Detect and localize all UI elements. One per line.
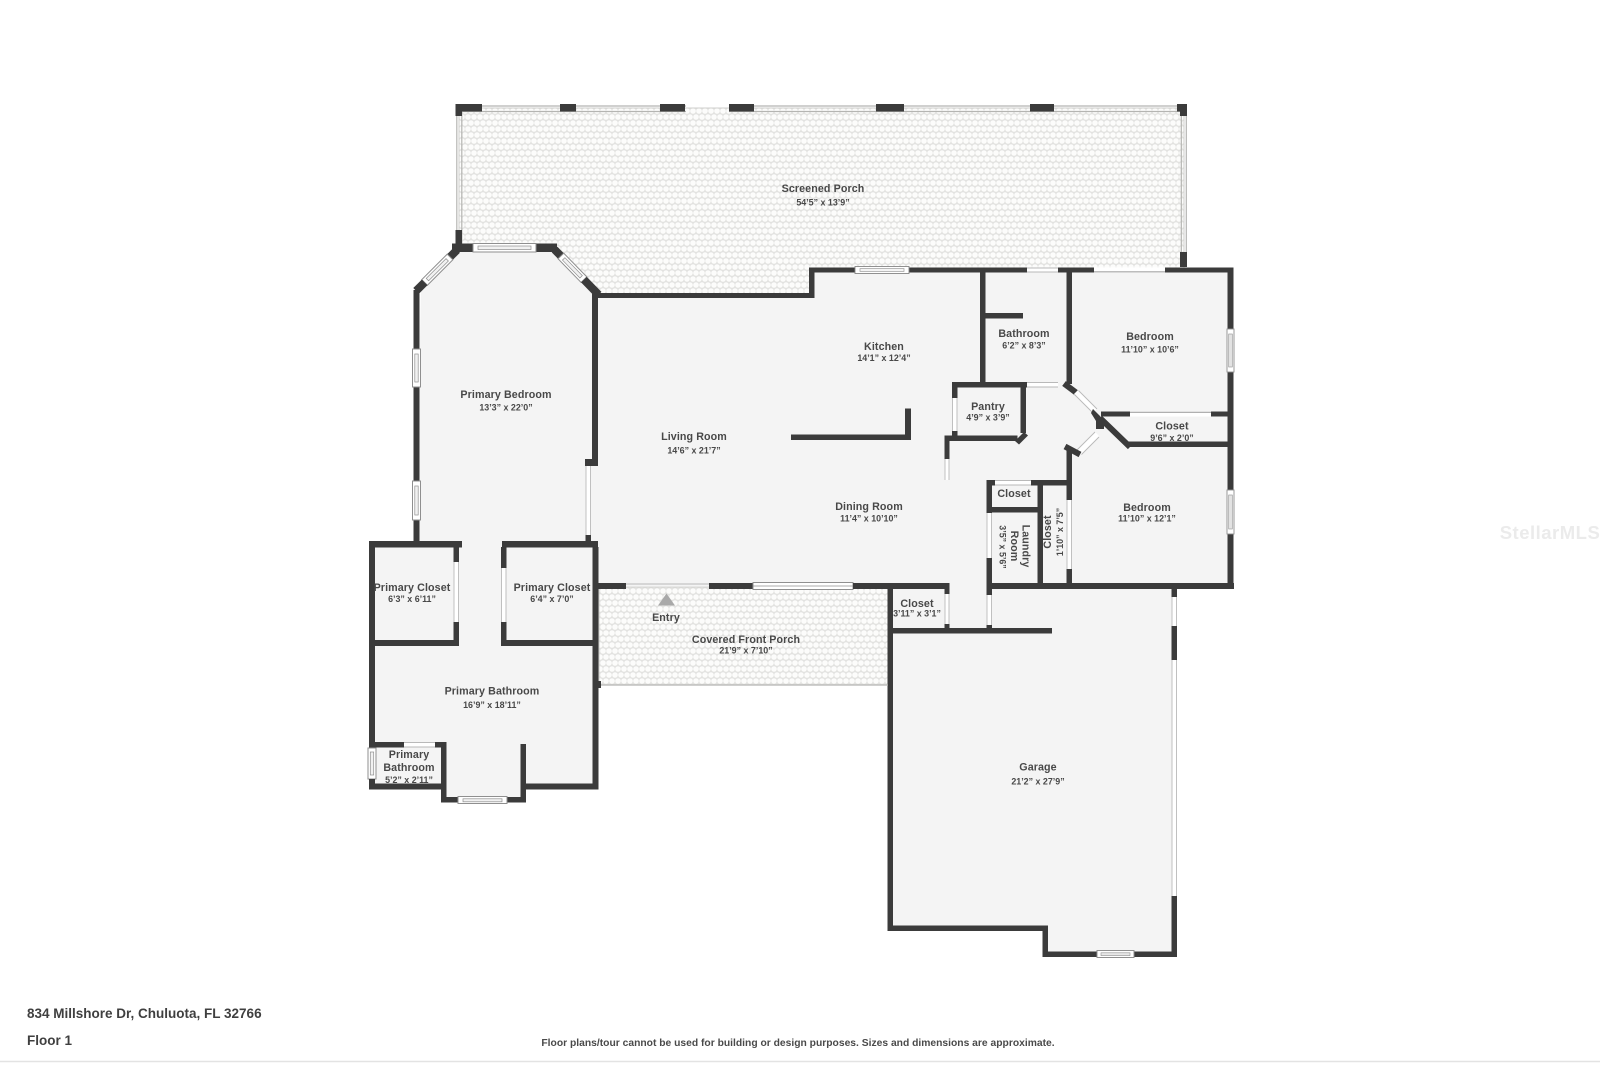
- svg-text:Pantry: Pantry: [971, 401, 1005, 413]
- svg-text:11’10” x 10’6”: 11’10” x 10’6”: [1121, 345, 1179, 355]
- svg-text:Primary Bathroom: Primary Bathroom: [445, 686, 540, 698]
- svg-text:Primary Bedroom: Primary Bedroom: [460, 389, 551, 401]
- svg-text:834 Millshore Dr, Chuluota, FL: 834 Millshore Dr, Chuluota, FL 32766: [27, 1006, 262, 1021]
- svg-text:6’4” x 7’0”: 6’4” x 7’0”: [530, 594, 573, 604]
- svg-text:Entry: Entry: [652, 612, 680, 624]
- svg-text:Primary: Primary: [389, 749, 430, 761]
- svg-text:11’4” x 10’10”: 11’4” x 10’10”: [840, 514, 898, 524]
- svg-text:9’6” x 2’0”: 9’6” x 2’0”: [1150, 433, 1193, 443]
- svg-text:Closet: Closet: [1155, 421, 1189, 433]
- svg-text:6’2” x 8’3”: 6’2” x 8’3”: [1002, 341, 1045, 351]
- svg-text:Floor plans/tour cannot be use: Floor plans/tour cannot be used for buil…: [541, 1038, 1054, 1049]
- svg-text:Screened Porch: Screened Porch: [782, 183, 865, 195]
- svg-text:5’2” x 2’11”: 5’2” x 2’11”: [385, 775, 433, 785]
- svg-text:Laundry: Laundry: [1020, 525, 1032, 568]
- svg-text:11’10” x 12’1”: 11’10” x 12’1”: [1118, 514, 1176, 524]
- svg-text:Bedroom: Bedroom: [1126, 331, 1174, 343]
- svg-text:21’2” x 27’9”: 21’2” x 27’9”: [1011, 777, 1064, 787]
- svg-text:Covered Front Porch: Covered Front Porch: [692, 634, 800, 646]
- svg-text:14’6” x 21’7”: 14’6” x 21’7”: [667, 446, 720, 456]
- svg-text:3’5” x 5’6”: 3’5” x 5’6”: [998, 525, 1008, 568]
- svg-text:Garage: Garage: [1019, 762, 1056, 774]
- svg-text:Bathroom: Bathroom: [998, 328, 1049, 340]
- svg-text:Kitchen: Kitchen: [864, 341, 904, 353]
- svg-text:14’1” x 12’4”: 14’1” x 12’4”: [857, 353, 910, 363]
- svg-text:Floor 1: Floor 1: [27, 1033, 72, 1048]
- svg-text:6’3” x 6’11”: 6’3” x 6’11”: [388, 594, 436, 604]
- svg-text:Bedroom: Bedroom: [1123, 502, 1171, 514]
- svg-text:21’9” x 7’10”: 21’9” x 7’10”: [719, 646, 772, 656]
- svg-text:3’11” x 3’1”: 3’11” x 3’1”: [893, 609, 941, 619]
- svg-text:Closet: Closet: [997, 488, 1031, 500]
- svg-text:Bathroom: Bathroom: [383, 762, 434, 774]
- svg-text:Primary Closet: Primary Closet: [374, 582, 451, 594]
- svg-text:StellarMLS: StellarMLS: [1500, 522, 1600, 543]
- svg-text:Primary Closet: Primary Closet: [514, 582, 591, 594]
- svg-text:4’9” x 3’9”: 4’9” x 3’9”: [966, 413, 1009, 423]
- svg-text:Dining Room: Dining Room: [835, 501, 903, 513]
- svg-text:1’10” x 7’5”: 1’10” x 7’5”: [1055, 508, 1065, 556]
- svg-text:Closet: Closet: [1042, 515, 1054, 549]
- svg-text:13’3” x 22’0”: 13’3” x 22’0”: [479, 403, 532, 413]
- svg-text:54’5” x 13’9”: 54’5” x 13’9”: [796, 198, 849, 208]
- svg-text:16’9” x 18’11”: 16’9” x 18’11”: [463, 700, 521, 710]
- svg-text:Living Room: Living Room: [661, 431, 727, 443]
- svg-text:Room: Room: [1008, 531, 1020, 562]
